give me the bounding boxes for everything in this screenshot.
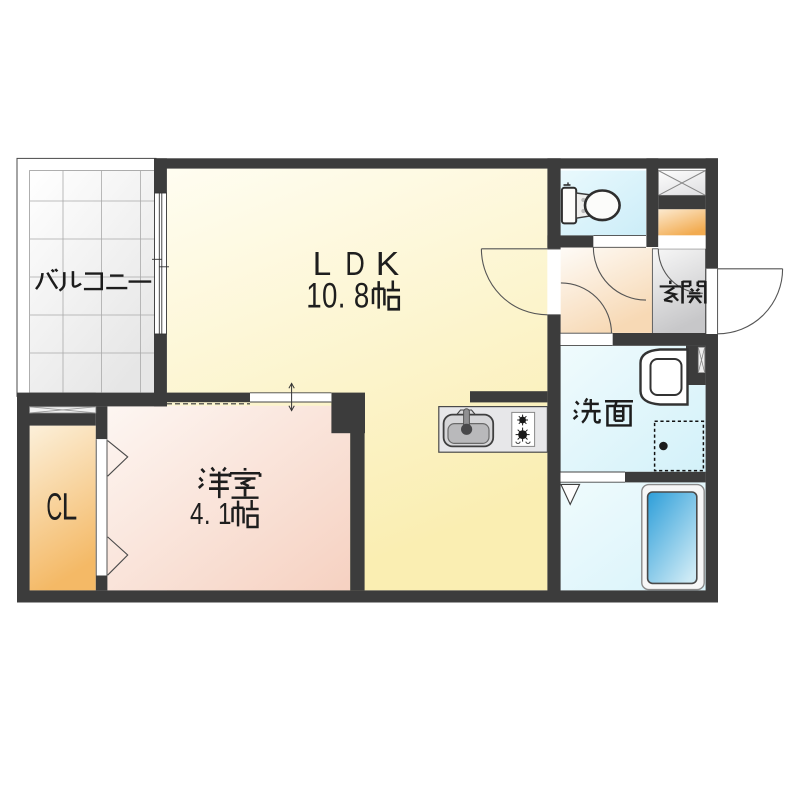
svg-text:L: L	[62, 487, 78, 529]
svg-text:C: C	[46, 485, 62, 528]
svg-text:4. 1: 4. 1	[190, 496, 232, 531]
svg-text:10. 8: 10. 8	[306, 275, 370, 315]
svg-text:K: K	[376, 246, 400, 283]
